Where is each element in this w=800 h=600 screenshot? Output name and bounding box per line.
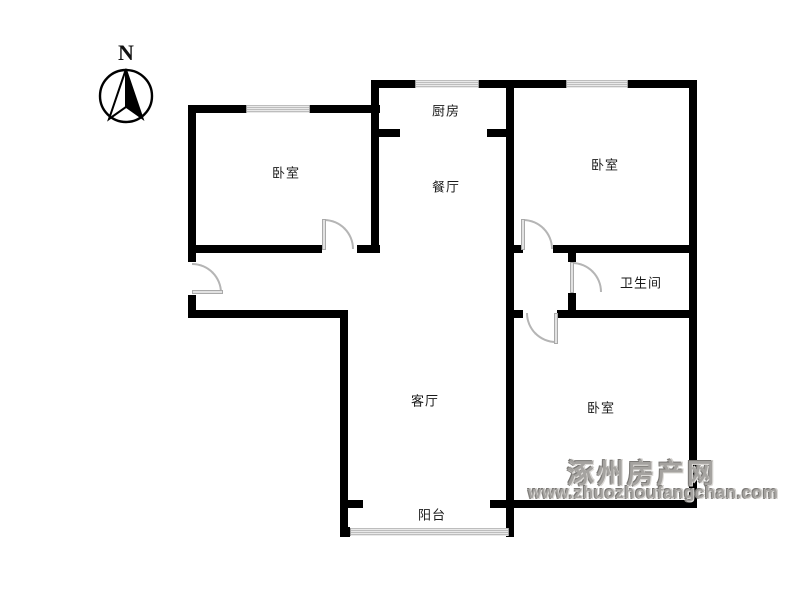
window [246, 105, 310, 113]
entry-door-leaf [192, 290, 223, 294]
door-arc [526, 313, 556, 343]
wall [188, 310, 348, 318]
door-arc [324, 219, 354, 249]
wall [626, 80, 697, 88]
room-label-balcony: 阳台 [418, 505, 446, 524]
compass-north-label: N [96, 42, 156, 64]
wall [568, 253, 576, 262]
window [566, 80, 628, 88]
room-label-bedroom-bottom-right: 卧室 [587, 398, 615, 417]
wall [557, 310, 697, 318]
room-label-bathroom: 卫生间 [620, 273, 662, 292]
wall [506, 80, 566, 88]
wall [506, 80, 514, 318]
door-leaf [554, 313, 558, 344]
bathroom-door-arc [572, 262, 602, 292]
balcony-window [350, 528, 509, 536]
wall [371, 80, 379, 250]
room-label-living-room: 客厅 [411, 391, 439, 410]
north-arrow-icon [97, 66, 155, 124]
room-label-bedroom-top-left: 卧室 [272, 163, 300, 182]
wall [340, 500, 363, 508]
wall [506, 310, 523, 318]
entry-door-arc [192, 263, 222, 293]
floor-plan: N [0, 0, 800, 600]
compass-north-indicator: N [96, 42, 156, 130]
wall [371, 129, 400, 137]
wall [188, 105, 246, 113]
wall [308, 105, 380, 113]
wall [188, 245, 322, 253]
wall [188, 105, 196, 262]
wall [340, 527, 350, 537]
door-leaf [322, 219, 326, 250]
door-arc [523, 219, 553, 249]
window [415, 80, 479, 88]
watermark-site-url: www.zhuozhoufangchan.com [528, 483, 778, 503]
wall [553, 245, 697, 253]
room-label-bedroom-top-right: 卧室 [591, 155, 619, 174]
bathroom-door-leaf [570, 262, 574, 293]
wall [371, 80, 415, 88]
wall [689, 80, 697, 508]
room-label-kitchen: 厨房 [432, 101, 460, 120]
door-leaf [521, 219, 525, 250]
room-label-dining: 餐厅 [432, 177, 460, 196]
